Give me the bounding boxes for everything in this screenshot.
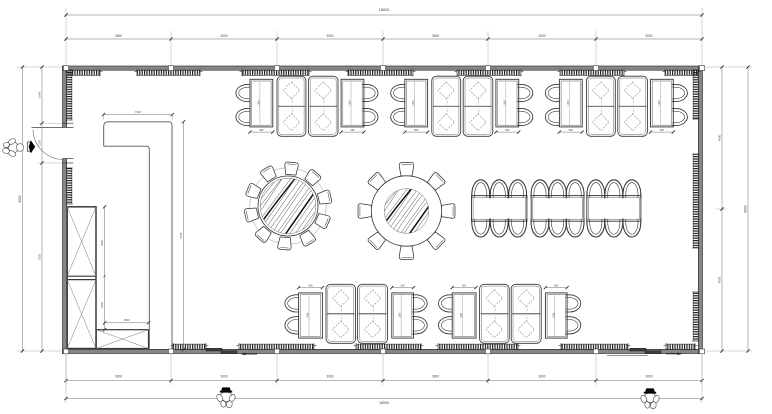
- svg-text:1380: 1380: [460, 312, 463, 318]
- svg-text:3000: 3000: [326, 34, 333, 38]
- svg-text:600: 600: [401, 284, 406, 287]
- svg-text:3000: 3000: [115, 34, 122, 38]
- svg-text:650: 650: [505, 129, 510, 132]
- svg-text:650: 650: [414, 129, 419, 132]
- svg-text:1380: 1380: [307, 312, 310, 318]
- svg-text:8000: 8000: [744, 205, 748, 212]
- svg-text:3000: 3000: [220, 375, 227, 379]
- svg-text:1136: 1136: [38, 140, 42, 147]
- svg-text:3000: 3000: [538, 34, 545, 38]
- svg-text:1380: 1380: [567, 100, 570, 106]
- svg-text:3000: 3000: [645, 34, 652, 38]
- svg-text:5325: 5325: [38, 253, 42, 260]
- svg-text:3000: 3000: [326, 375, 333, 379]
- svg-text:1380: 1380: [658, 100, 661, 106]
- svg-text:600: 600: [554, 284, 559, 287]
- svg-text:1380: 1380: [399, 312, 402, 318]
- svg-text:1500: 1500: [124, 318, 130, 322]
- svg-text:3000: 3000: [115, 375, 122, 379]
- svg-text:4000: 4000: [718, 134, 722, 141]
- svg-text:650: 650: [259, 129, 264, 132]
- svg-text:650: 650: [569, 129, 574, 132]
- svg-text:8000: 8000: [18, 195, 22, 202]
- svg-text:600: 600: [462, 284, 467, 287]
- svg-text:1380: 1380: [552, 312, 555, 318]
- svg-text:3000: 3000: [538, 375, 545, 379]
- svg-text:1640: 1640: [38, 91, 42, 98]
- svg-text:1380: 1380: [412, 100, 415, 106]
- svg-text:1380: 1380: [257, 100, 260, 106]
- svg-text:3000: 3000: [432, 34, 439, 38]
- svg-text:3000: 3000: [432, 375, 439, 379]
- svg-text:2500: 2500: [100, 240, 104, 246]
- svg-text:1380: 1380: [503, 100, 506, 106]
- svg-text:650: 650: [351, 129, 356, 132]
- svg-text:1380: 1380: [349, 100, 352, 106]
- svg-text:18000: 18000: [379, 8, 390, 12]
- svg-text:5140: 5140: [179, 232, 183, 238]
- svg-text:3000: 3000: [645, 375, 652, 379]
- svg-text:650: 650: [660, 129, 665, 132]
- svg-text:600: 600: [309, 284, 314, 287]
- svg-text:7240: 7240: [135, 110, 141, 114]
- svg-text:3000: 3000: [220, 34, 227, 38]
- svg-text:18000: 18000: [379, 401, 389, 405]
- svg-text:4000: 4000: [718, 276, 722, 283]
- svg-text:1800: 1800: [100, 302, 104, 308]
